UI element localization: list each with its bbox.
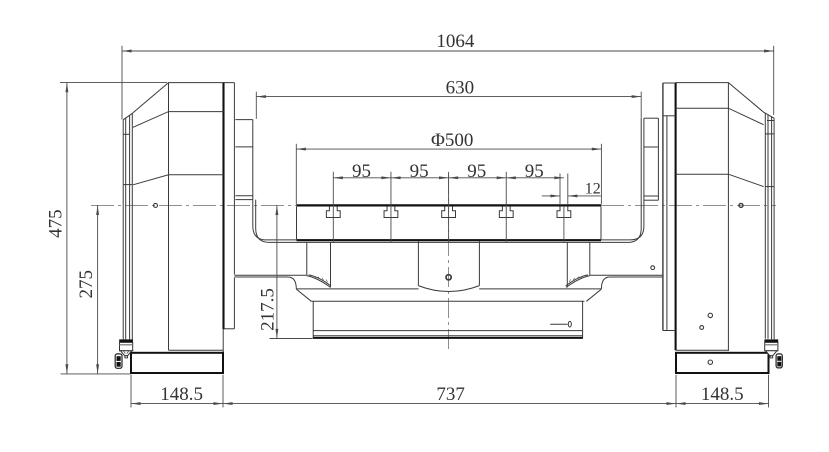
svg-text:Φ500: Φ500 [431,130,473,151]
svg-text:95: 95 [525,161,544,182]
svg-text:148.5: 148.5 [701,384,744,405]
svg-text:737: 737 [436,384,465,405]
svg-text:475: 475 [46,209,67,238]
svg-text:1064: 1064 [436,31,475,52]
svg-text:148.5: 148.5 [160,384,203,405]
svg-text:275: 275 [76,270,97,299]
svg-text:95: 95 [467,161,486,182]
svg-text:95: 95 [410,161,429,182]
svg-text:217.5: 217.5 [258,288,279,331]
svg-text:95: 95 [352,161,371,182]
svg-text:12: 12 [585,181,601,198]
svg-text:630: 630 [446,77,475,98]
